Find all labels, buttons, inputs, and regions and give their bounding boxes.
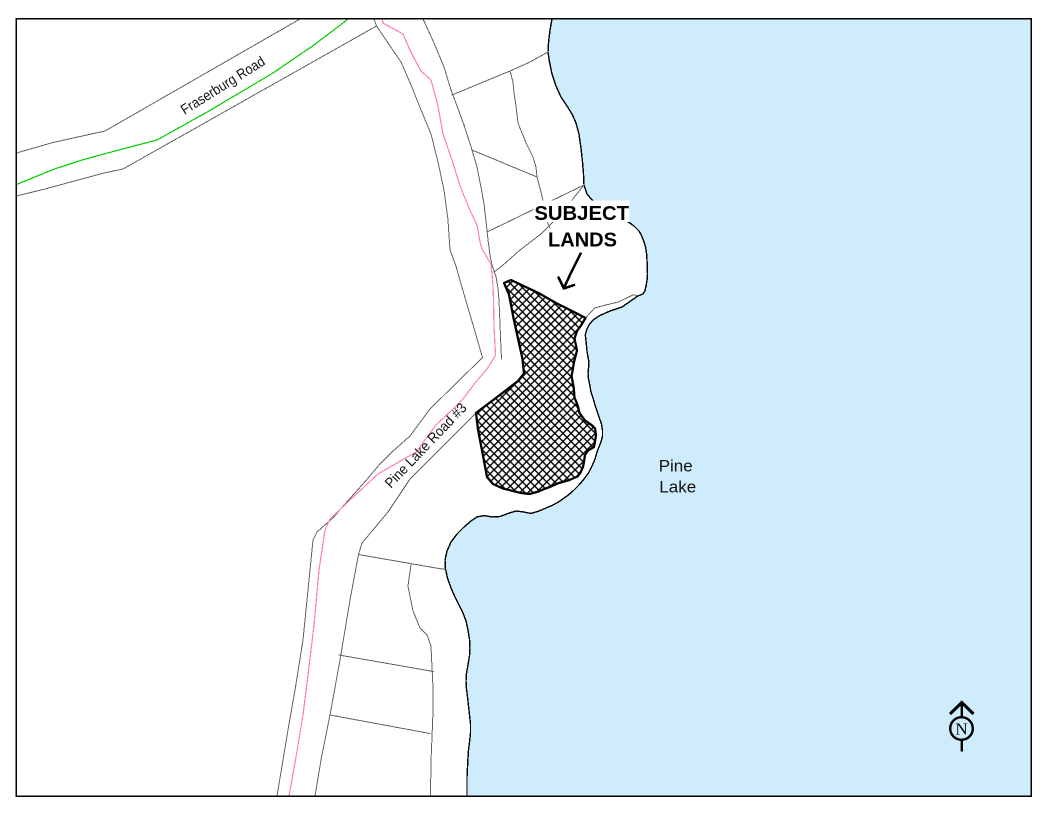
svg-text:Pine: Pine: [659, 457, 693, 476]
svg-text:SUBJECT: SUBJECT: [534, 202, 629, 225]
svg-text:Lake: Lake: [659, 477, 696, 496]
svg-text:N: N: [955, 720, 967, 739]
svg-text:LANDS: LANDS: [548, 229, 617, 252]
